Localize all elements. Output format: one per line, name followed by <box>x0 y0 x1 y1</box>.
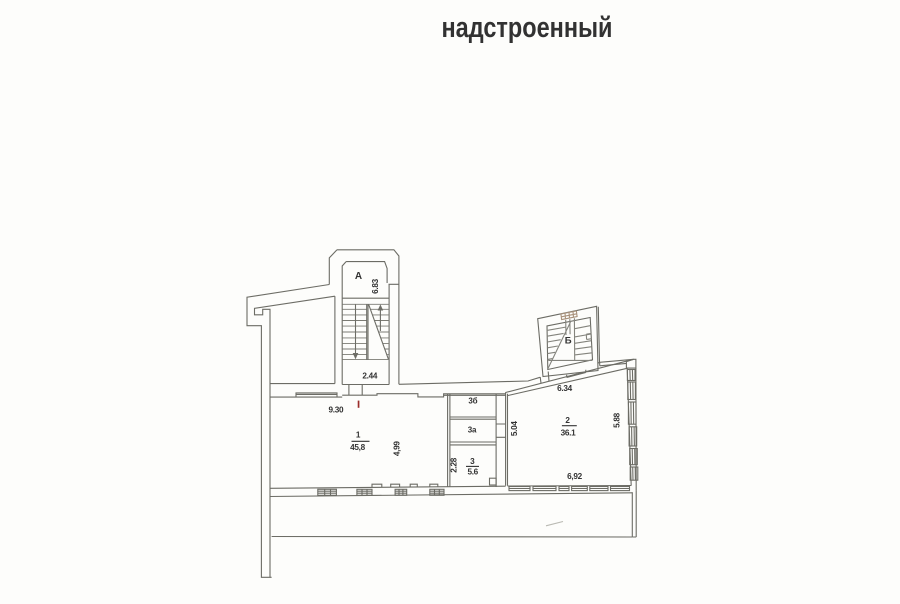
svg-text:6.83: 6.83 <box>371 278 380 293</box>
svg-text:3: 3 <box>470 457 475 466</box>
svg-text:6,92: 6,92 <box>567 472 582 481</box>
svg-text:6.34: 6.34 <box>557 384 572 393</box>
svg-text:4,99: 4,99 <box>393 441 402 456</box>
svg-text:36.1: 36.1 <box>561 429 576 438</box>
svg-text:2.44: 2.44 <box>362 372 377 381</box>
svg-text:A: A <box>355 271 362 282</box>
svg-text:надстроенный: надстроенный <box>442 12 613 44</box>
svg-text:9.30: 9.30 <box>329 405 344 414</box>
svg-text:3б: 3б <box>468 396 477 405</box>
svg-text:Б: Б <box>565 335 572 346</box>
svg-text:5.6: 5.6 <box>467 467 478 476</box>
svg-text:1: 1 <box>356 430 361 439</box>
svg-text:45,8: 45,8 <box>350 443 365 452</box>
svg-text:5.04: 5.04 <box>510 421 519 436</box>
svg-text:5.88: 5.88 <box>613 412 622 427</box>
svg-text:2.28: 2.28 <box>450 457 459 472</box>
svg-text:3а: 3а <box>468 426 477 435</box>
svg-text:2: 2 <box>565 416 570 425</box>
